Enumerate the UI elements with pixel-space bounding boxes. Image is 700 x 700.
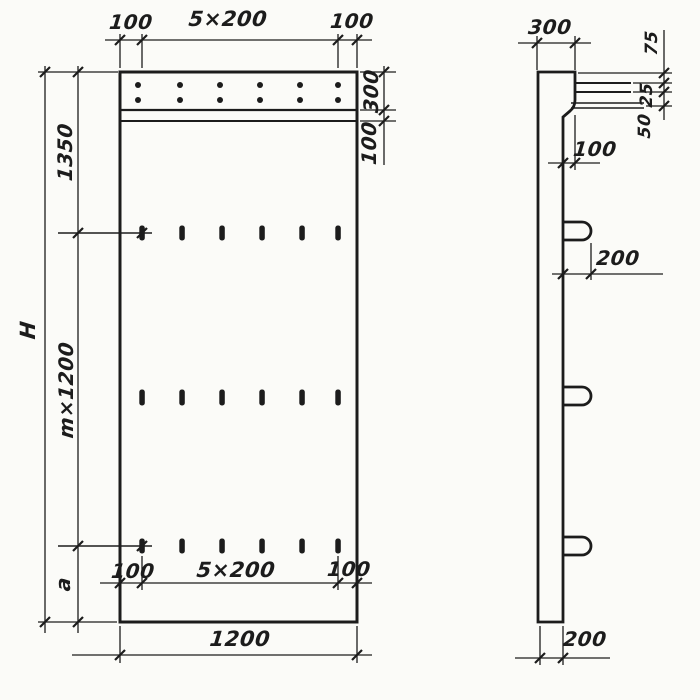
dim-side-stack-bottom: 50 — [635, 113, 655, 140]
side-profile-outline — [538, 72, 575, 622]
dim-height-total: H — [16, 320, 40, 341]
technical-drawing: 100 5×200 100 100 5×200 100 1200 300 100… — [0, 0, 700, 700]
dim-side-stack-mid: 25 — [637, 82, 657, 109]
dim-top-spacing: 5×200 — [187, 7, 268, 31]
panel-outline — [120, 72, 357, 622]
cap-rebar-dots — [135, 82, 341, 103]
dim-side-top-width: 300 — [527, 15, 573, 39]
dim-side-ledge: 100 — [572, 137, 618, 161]
dim-side-loop: 200 — [595, 246, 641, 270]
dim-height-bottom: a — [51, 576, 75, 593]
dim-height-module: m×1200 — [54, 341, 78, 440]
dim-top-left: 100 — [108, 10, 154, 34]
dim-cap-depth: 300 — [359, 68, 383, 114]
dim-slot-right: 100 — [326, 557, 372, 581]
slot-row-bottom — [140, 539, 340, 553]
side-rail-lines — [571, 83, 644, 108]
dim-cap-strip: 100 — [357, 120, 381, 166]
dim-side-stack-top: 75 — [642, 30, 662, 57]
drawing-linework — [0, 0, 700, 700]
slot-row-middle — [140, 390, 340, 405]
dim-overall-width: 1200 — [209, 627, 272, 651]
front-view — [58, 72, 357, 622]
lifting-loop-3 — [563, 537, 591, 555]
lifting-loop-1 — [563, 222, 591, 240]
lifting-loops — [563, 222, 591, 555]
slot-row-top — [140, 226, 340, 240]
lifting-loop-2 — [563, 387, 591, 405]
dim-height-top: 1350 — [53, 122, 77, 182]
dim-top-right: 100 — [329, 9, 375, 33]
dim-side-thickness: 200 — [562, 627, 608, 651]
dim-slot-spacing: 5×200 — [195, 558, 276, 582]
dim-slot-left: 100 — [110, 559, 156, 583]
